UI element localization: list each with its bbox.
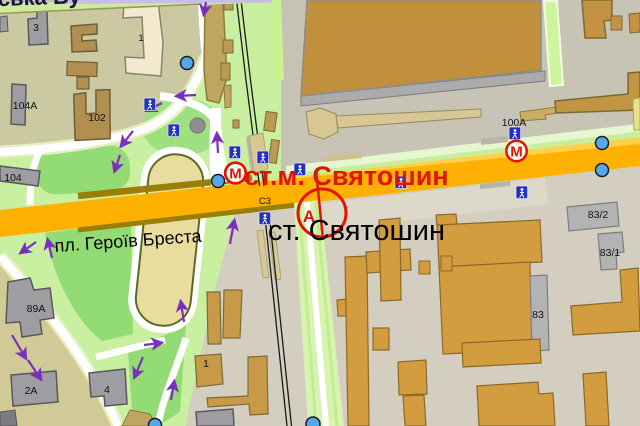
- svg-text:83/2: 83/2: [588, 209, 609, 221]
- svg-text:4: 4: [104, 384, 110, 396]
- svg-text:100A: 100A: [502, 117, 527, 129]
- svg-text:1: 1: [203, 358, 209, 370]
- svg-text:104: 104: [4, 172, 22, 184]
- svg-text:М: М: [510, 144, 523, 161]
- svg-text:М: М: [229, 166, 242, 183]
- svg-text:ст. Святошин: ст. Святошин: [268, 215, 445, 247]
- svg-text:83: 83: [532, 309, 544, 321]
- svg-text:3: 3: [33, 23, 39, 34]
- svg-text:2А: 2А: [25, 385, 38, 397]
- svg-text:83/1: 83/1: [600, 247, 621, 259]
- svg-text:1: 1: [138, 33, 143, 44]
- svg-text:102: 102: [88, 112, 106, 124]
- svg-text:89А: 89А: [27, 303, 46, 315]
- svg-text:С3: С3: [259, 196, 271, 207]
- svg-text:104А: 104А: [13, 100, 38, 112]
- svg-text:ст.м. Святошин: ст.м. Святошин: [244, 161, 449, 191]
